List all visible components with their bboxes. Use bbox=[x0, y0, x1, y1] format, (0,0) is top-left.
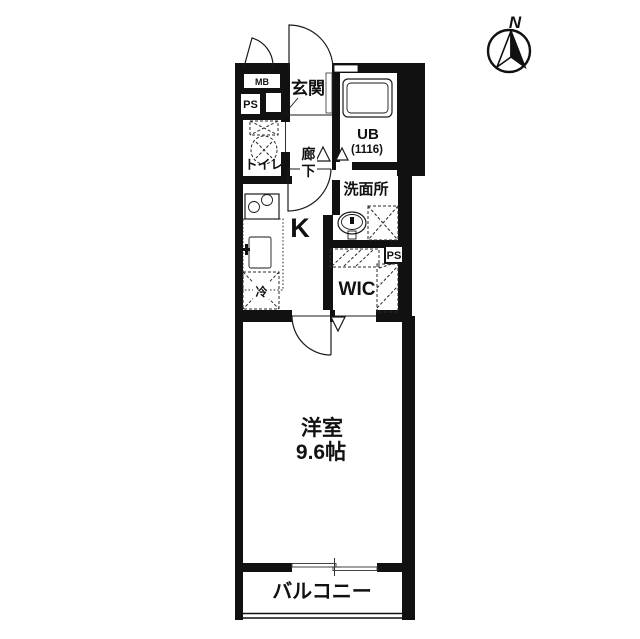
kitchen-fixture bbox=[240, 194, 283, 290]
wall-outer-left bbox=[235, 63, 243, 620]
bathtub-outer bbox=[343, 79, 392, 117]
ub-label: UB bbox=[357, 126, 379, 143]
wall-kitchen-wic bbox=[323, 215, 333, 310]
wall-balcony-right bbox=[377, 563, 415, 572]
fridge-label: 冷 bbox=[255, 284, 267, 299]
genkan-label: 玄関 bbox=[291, 78, 325, 98]
wic-hatch2 bbox=[344, 250, 361, 266]
bathtub-inner bbox=[347, 83, 388, 113]
washroom-label: 洗面所 bbox=[343, 180, 388, 198]
corridor-char2: 下 bbox=[302, 163, 316, 179]
wic-label: WIC bbox=[339, 279, 376, 300]
wic-hatch4 bbox=[377, 286, 398, 308]
toilet-label: トイレ bbox=[244, 157, 283, 172]
ps-right-label: PS bbox=[387, 250, 402, 262]
ub-size-label: (1116) bbox=[351, 144, 383, 156]
balcony-railing bbox=[237, 614, 415, 619]
ps-top-label: PS bbox=[243, 99, 258, 111]
floor-plan-page: N MB PS 玄関 トイレ 廊 下 UB (1116) 洗面所 K 冷 WIC… bbox=[0, 0, 640, 639]
window-sash-right bbox=[333, 567, 377, 571]
compass: N bbox=[488, 13, 530, 72]
ub-window bbox=[334, 65, 358, 72]
washroom-fixtures bbox=[338, 206, 398, 240]
kitchen-sink bbox=[249, 237, 271, 268]
wall-outer-right-top bbox=[397, 63, 425, 176]
room-door-arc bbox=[292, 316, 331, 355]
mb-label: MB bbox=[255, 77, 269, 87]
north-label: N bbox=[509, 13, 522, 32]
wall-ub-bottom-stub bbox=[332, 162, 336, 170]
wall-ub-left bbox=[332, 63, 340, 162]
wic-shelf-right bbox=[377, 264, 398, 312]
wall-outer-right-bottom bbox=[402, 316, 415, 620]
shoe-cabinet bbox=[326, 73, 332, 113]
bathtub bbox=[343, 79, 392, 117]
toilet-bowl-hatch2 bbox=[256, 142, 272, 158]
wall-corridor-right bbox=[332, 180, 340, 215]
door-mark-down-icon bbox=[331, 317, 345, 331]
balcony-window bbox=[292, 558, 377, 576]
mb-door-arc bbox=[244, 38, 273, 67]
window-sash-left bbox=[292, 564, 336, 568]
wic-hatch6 bbox=[379, 264, 392, 268]
wic-hatch1 bbox=[332, 250, 349, 266]
kitchen-label: K bbox=[290, 213, 310, 243]
basin-pedestal bbox=[348, 231, 356, 239]
kitchen-tap-handle bbox=[245, 244, 248, 255]
burner-1 bbox=[249, 202, 260, 213]
balcony-label: バルコニー bbox=[272, 580, 372, 603]
wic-hatch3 bbox=[356, 250, 373, 266]
wic-hatch5 bbox=[377, 266, 398, 288]
burner-2 bbox=[262, 195, 273, 206]
main-room-label: 洋室 bbox=[301, 416, 343, 440]
floor-plan-drawing: N MB PS 玄関 トイレ 廊 下 UB (1116) 洗面所 K 冷 WIC… bbox=[0, 0, 640, 639]
basin-tap bbox=[350, 217, 354, 224]
wall-ub-bottom bbox=[352, 162, 397, 170]
door-mark-up-icon bbox=[316, 147, 330, 161]
corridor-char1: 廊 bbox=[302, 146, 316, 162]
main-room-size: 9.6帖 bbox=[296, 441, 346, 464]
wall-balcony-left bbox=[235, 563, 292, 572]
wall-room-top-left bbox=[235, 310, 292, 322]
walls bbox=[235, 63, 425, 620]
entrance-door-arc bbox=[289, 25, 333, 69]
